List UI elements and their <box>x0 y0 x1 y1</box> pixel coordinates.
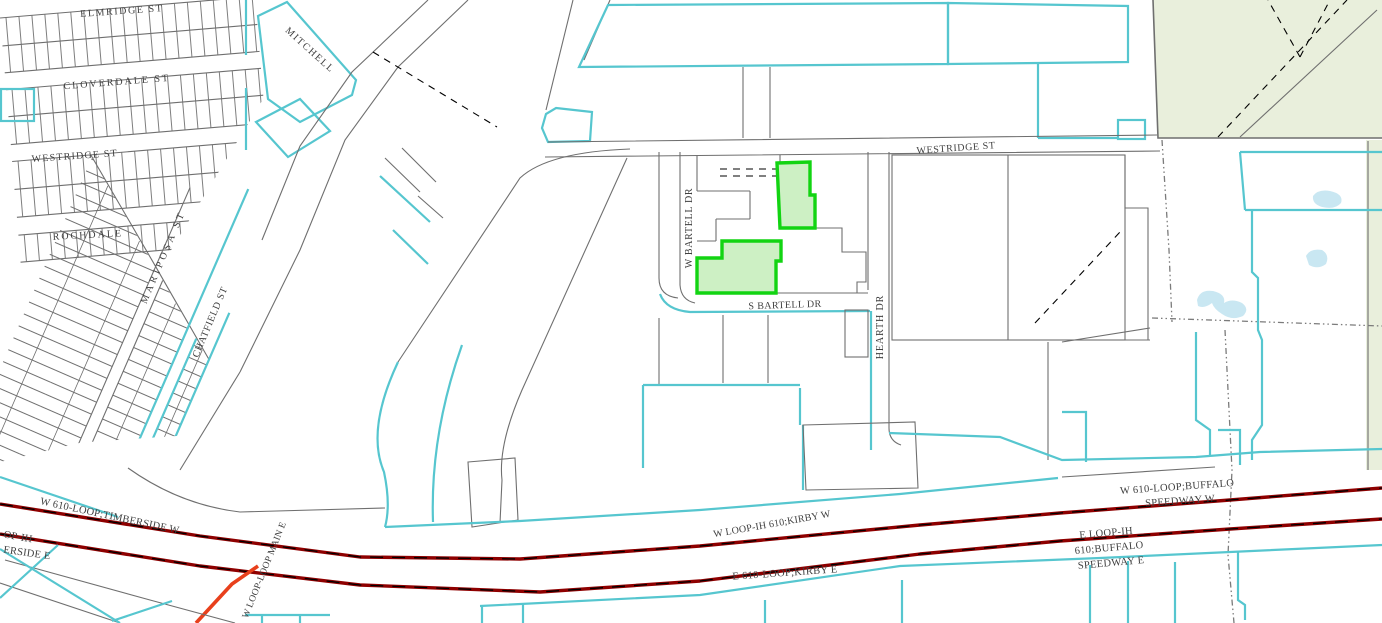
hw-label-buffalo-e-2: 610;BUFFALO <box>1074 540 1144 557</box>
street-label-w-bartell: W BARTELL DR <box>684 188 695 269</box>
hw-label-buffalo-e-1: E LOOP-IH <box>1079 526 1134 542</box>
selected-parcel-north[interactable] <box>777 162 815 228</box>
parcel-map[interactable]: ELMRIDGE ST CLOVERDALE ST WESTRIDGE ST R… <box>0 0 1382 623</box>
street-label-hearth: HEARTH DR <box>875 295 886 359</box>
mitchell-blocks <box>256 2 356 157</box>
hw-label-kirby-e: E 610-LOOP;KIRBY E <box>732 564 838 582</box>
map-canvas[interactable]: ELMRIDGE ST CLOVERDALE ST WESTRIDGE ST R… <box>0 0 1382 623</box>
hw-label-timberside-e-2: ERSIDE E <box>3 545 51 562</box>
top-center-parcels <box>542 3 1160 157</box>
hw-label-buffalo-w-2: SPEEDWAY W <box>1145 494 1216 510</box>
zoning-areas <box>1153 0 1382 470</box>
hw-label-timberside-w: W 610-LOOP;TIMBERSIDE W <box>39 496 180 536</box>
street-label-westridge: WESTRIDGE ST <box>916 140 996 156</box>
hw-label-buffalo-w-1: W 610-LOOP;BUFFALO <box>1120 478 1235 497</box>
hw-label-timberside-e-1: OP-IH <box>3 530 34 546</box>
selected-parcel-south[interactable] <box>697 241 781 293</box>
